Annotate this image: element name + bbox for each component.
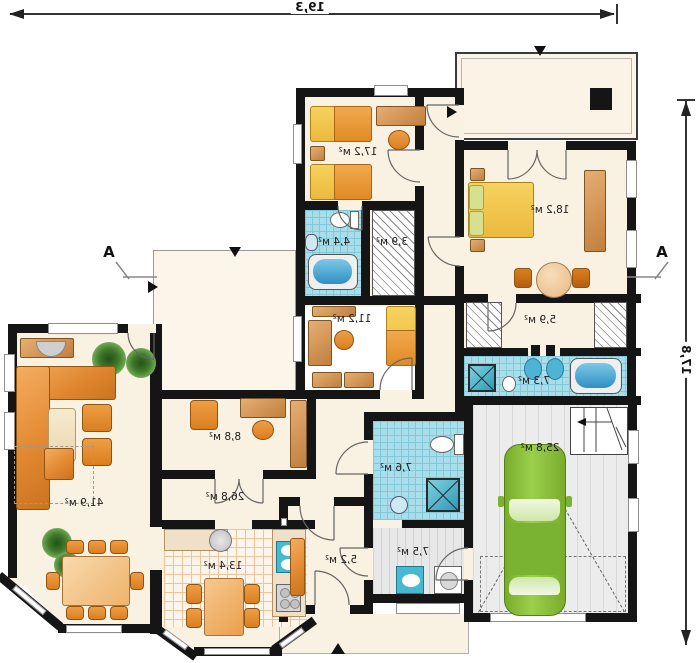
wall	[361, 205, 370, 305]
door-gap	[464, 548, 473, 580]
step	[396, 603, 460, 614]
door-gap	[415, 150, 424, 186]
armchair	[190, 400, 218, 430]
car-roof	[509, 523, 560, 575]
door-gap	[215, 470, 263, 479]
toilet	[330, 212, 350, 228]
wall	[296, 296, 464, 305]
wall	[402, 520, 472, 528]
window	[626, 160, 637, 198]
dining-chair	[130, 572, 144, 590]
room-label-study: 8,8 м²	[209, 431, 241, 443]
bathtub	[570, 358, 622, 394]
blanket	[334, 106, 372, 142]
room-label-master-bath: 7,3 м²	[518, 375, 550, 387]
door-gap	[300, 497, 334, 506]
section-marker-right: A	[656, 243, 668, 261]
door-gap	[455, 105, 464, 140]
kitchen-chair	[244, 608, 260, 628]
dimension-tick	[616, 4, 618, 24]
terrace-left	[153, 250, 296, 392]
door-gap	[455, 237, 464, 266]
dimension-height-label: 17,8	[679, 342, 693, 378]
toilet	[502, 376, 516, 392]
section-marker-left: A	[103, 243, 115, 261]
room-label-bath-top: 4,4 м²	[318, 236, 350, 248]
room-label-bedroom: 18,2 м²	[531, 204, 570, 216]
window	[628, 430, 639, 464]
chimney	[590, 88, 612, 110]
toilet	[430, 436, 454, 453]
wall	[455, 396, 641, 405]
sliding-door-mark	[531, 345, 540, 356]
window	[48, 323, 118, 334]
wardrobe	[290, 400, 307, 468]
wall	[162, 390, 315, 399]
kitchen-table	[204, 578, 244, 636]
floor-corridor-upper	[424, 305, 455, 405]
window	[204, 648, 270, 655]
desk	[240, 398, 286, 418]
window	[628, 498, 639, 532]
dimension-tick	[677, 99, 695, 101]
built-in-closet	[466, 302, 502, 348]
room-label-garage: 25,8 м²	[521, 442, 560, 454]
car	[504, 444, 566, 616]
nightstand	[470, 168, 485, 181]
utility-sink	[396, 566, 424, 594]
blanket	[334, 164, 372, 200]
window	[4, 412, 15, 450]
kitchen-chair	[186, 608, 202, 628]
dining-table	[62, 556, 130, 606]
desk	[308, 320, 332, 366]
window	[293, 316, 302, 362]
dining-chair	[110, 540, 128, 554]
built-in-closet	[594, 302, 627, 348]
door-gap	[315, 605, 350, 614]
fireplace	[44, 448, 74, 480]
hall-cabinet	[290, 538, 305, 596]
nightstand	[310, 146, 325, 161]
blanket	[386, 330, 416, 366]
pillow	[469, 185, 484, 210]
door-gap	[508, 141, 566, 150]
wall	[296, 88, 305, 310]
kitchen-chair	[186, 584, 202, 604]
washbasin	[305, 234, 318, 251]
door-gap	[380, 390, 412, 399]
chair	[572, 268, 590, 288]
wall	[415, 296, 424, 399]
window	[4, 354, 15, 392]
wall	[455, 145, 464, 309]
shower	[468, 364, 496, 392]
room-label-children2: 11,2 м²	[333, 313, 372, 325]
wall	[364, 594, 472, 603]
bathtub	[308, 254, 358, 290]
car-mirror	[498, 496, 504, 507]
car-windshield	[509, 499, 560, 521]
floor-plan: 19,3 17,8 A A 17,2 м² 18,2 м² 4,4 м² 3,9…	[0, 0, 700, 663]
room-label-children1: 17,2 м²	[339, 146, 378, 158]
toilet-tank	[454, 434, 464, 455]
dining-chair	[110, 606, 128, 620]
built-in-closet	[372, 210, 415, 296]
room-label-corridor: 26,8 м²	[206, 491, 245, 503]
pillow	[469, 211, 484, 236]
dining-chair	[88, 606, 106, 620]
washing-machine	[434, 566, 462, 594]
door-gap	[215, 520, 252, 529]
washbasin	[390, 496, 408, 514]
window	[626, 230, 637, 268]
room-label-dressing: 5,9 м²	[524, 314, 556, 326]
wall	[364, 412, 472, 421]
door-gap	[364, 440, 373, 474]
dining-chair	[88, 540, 106, 554]
dining-chair	[66, 606, 84, 620]
door-gap	[150, 527, 162, 570]
plant	[126, 348, 156, 378]
desk-chair	[334, 330, 354, 350]
armchair	[82, 404, 112, 432]
kitchen-chair	[244, 584, 260, 604]
chair	[514, 268, 532, 288]
window	[374, 85, 408, 96]
room-label-utility: 7,5 м²	[397, 546, 429, 558]
round-table	[536, 262, 572, 298]
dining-chair	[46, 572, 60, 590]
wall	[307, 390, 316, 479]
desk-chair	[252, 420, 274, 440]
shower	[426, 478, 460, 512]
dimension-width-label: 19,3	[291, 0, 329, 14]
door-gap	[128, 324, 156, 333]
room-label-wardrobe-top: 3,9 м²	[376, 236, 408, 248]
door-gap	[364, 548, 373, 580]
room-label-kitchen: 13,4 м²	[204, 560, 243, 572]
wall	[464, 405, 473, 622]
car-mirror	[566, 496, 572, 507]
car-rear-window	[509, 577, 560, 595]
dining-chair	[66, 540, 84, 554]
sliding-door-mark	[546, 345, 555, 356]
stairs	[570, 407, 628, 455]
room-label-living: 41,9 м²	[65, 497, 104, 509]
meter-box	[281, 518, 287, 526]
wardrobe	[584, 170, 606, 252]
desk-chair	[388, 130, 410, 150]
toilet-tank	[350, 211, 359, 229]
nightstand	[470, 239, 485, 252]
window	[293, 124, 302, 164]
window	[66, 625, 122, 633]
room-label-bath-main: 7,6 м²	[380, 462, 412, 474]
desk	[376, 106, 426, 126]
cabinet	[344, 372, 374, 388]
door-gap	[338, 201, 362, 210]
cabinet	[312, 372, 342, 388]
fridge	[209, 529, 232, 552]
room-label-hall: 5,2 м²	[325, 554, 357, 566]
